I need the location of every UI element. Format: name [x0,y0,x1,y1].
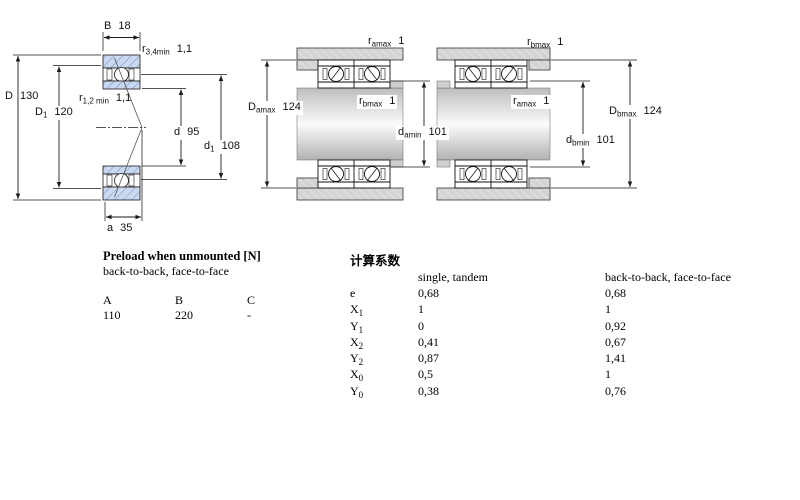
factors-col1-header: single, tandem [418,270,488,285]
catalog-drawing-page: B18 r3,4min1,1 D130 D1120 r1,2 min1,1 d9… [0,0,800,500]
dim-label-d1: d1108 [202,140,242,154]
preload-value-a: 110 [103,308,121,323]
preload-value-b: 220 [175,308,193,323]
factors-table: e 0,680,68 X1 11 Y1 00,92 X2 0,410,67 Y2… [350,286,770,400]
dim-label-r34min: r3,4min1,1 [142,43,192,57]
dim-label-D: D130 [5,90,38,104]
dim-label-rbmax-b: rbmax1 [527,36,563,50]
dim-label-Dbmax: Dbmax124 [607,105,664,119]
factors-row-y0: Y0 0,380,76 [350,384,770,400]
preload-col-b: B [175,293,183,308]
dim-label-rbmax-a: rbmax1 [357,95,397,109]
factors-row-x2: X2 0,410,67 [350,335,770,351]
dim-label-r12min: r1,2 min1,1 [79,92,131,106]
factors-row-x0: X0 0,51 [350,367,770,383]
dim-label-D1: D1120 [33,106,75,120]
preload-col-a: A [103,293,112,308]
preload-title: Preload when unmounted [N] [103,249,261,264]
factors-row-e: e 0,680,68 [350,286,770,302]
factors-row-x1: X1 11 [350,302,770,318]
preload-col-c: C [247,293,255,308]
factors-col2-header: back-to-back, face-to-face [605,270,731,285]
factors-row-y1: Y1 00,92 [350,319,770,335]
dim-label-d: d95 [172,126,201,140]
dim-label-damin: damin101 [396,126,449,140]
factors-title: 计算系数 [350,250,400,269]
dim-label-ramax-a: ramax1 [368,35,404,49]
factors-row-y2: Y2 0,871,41 [350,351,770,367]
dim-label-a: a35 [107,222,132,236]
dim-label-Damax: Damax124 [246,101,303,115]
preload-subtitle: back-to-back, face-to-face [103,264,229,279]
single-bearing-section [96,55,146,200]
dim-label-dbmin: dbmin101 [564,134,617,148]
dim-label-ramax-b: ramax1 [511,95,551,109]
dim-label-B: B18 [104,20,131,34]
preload-value-c: - [247,308,251,323]
